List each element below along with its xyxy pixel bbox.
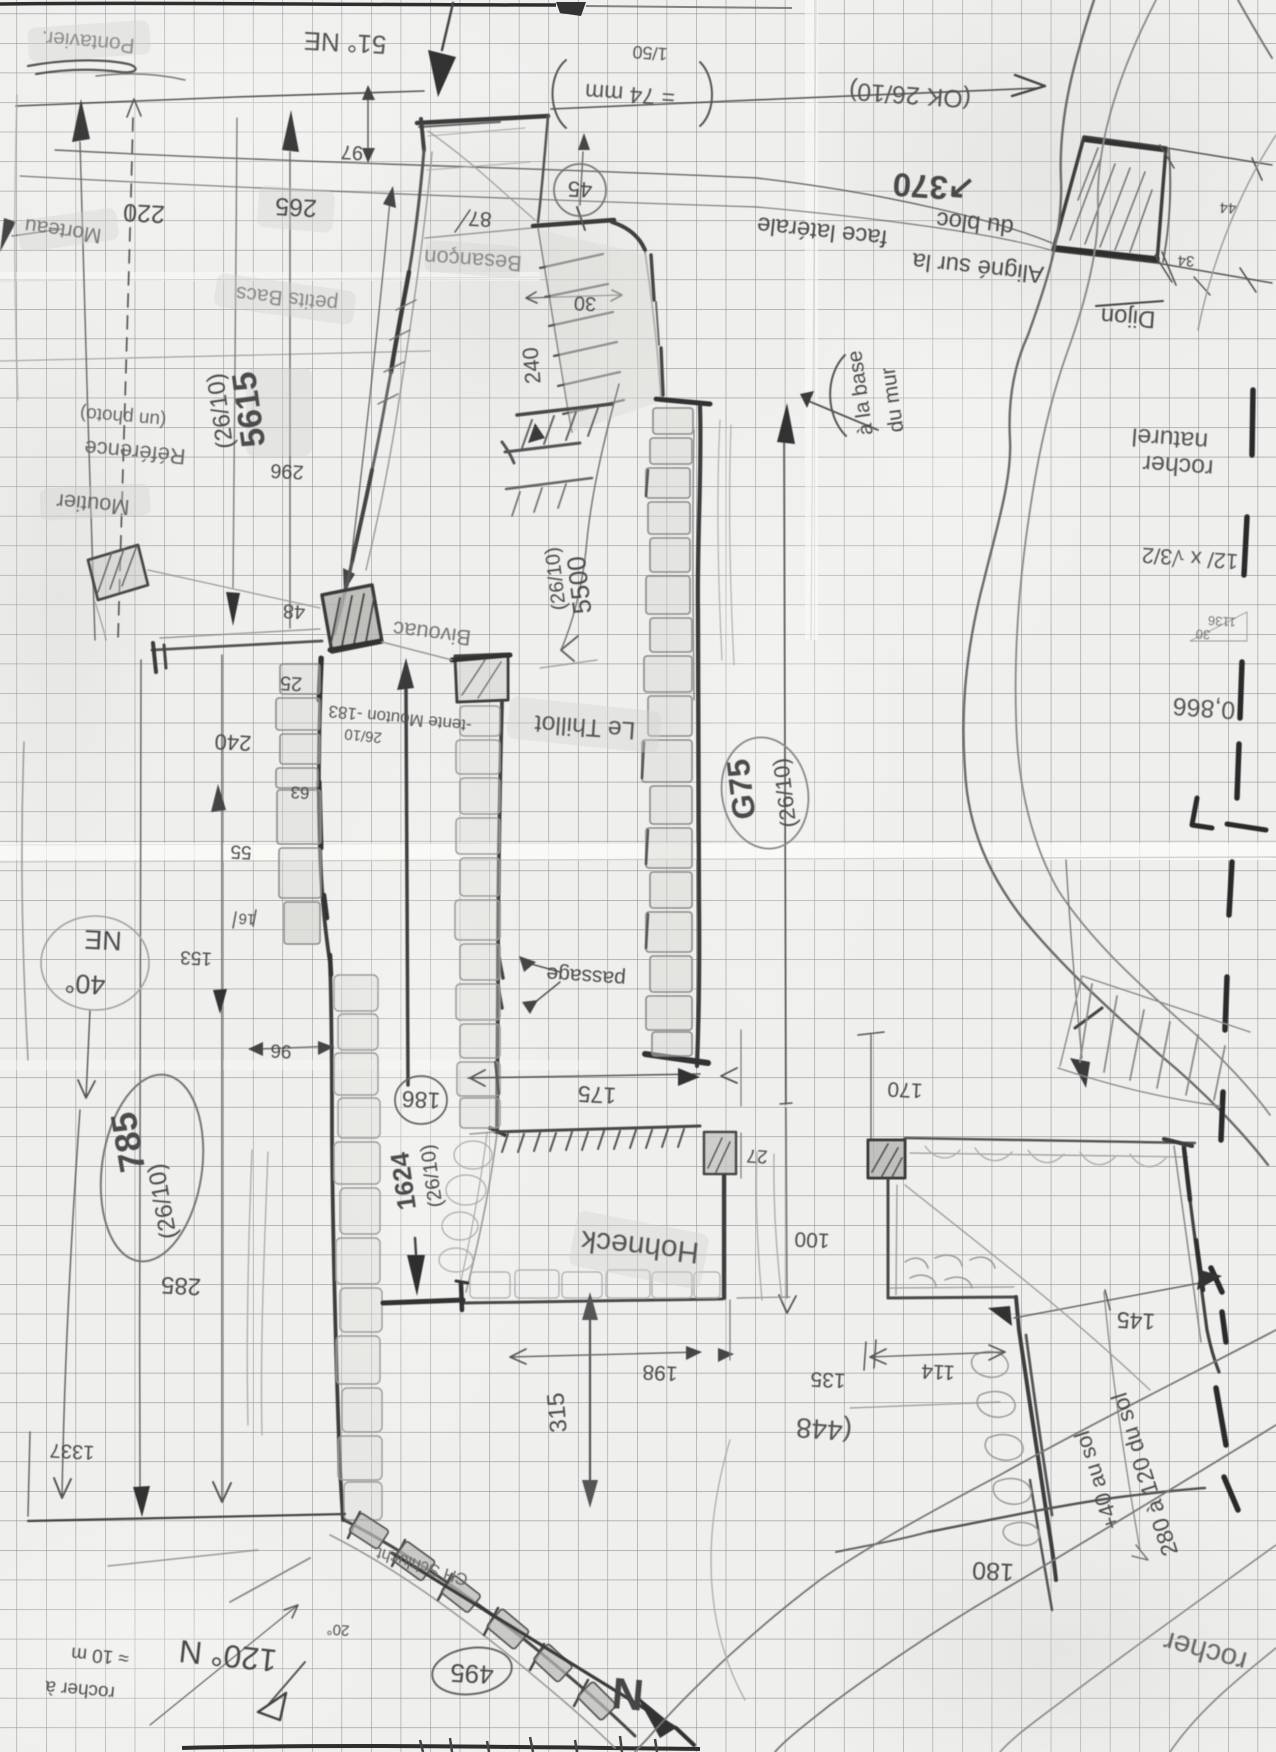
svg-text:↗370: ↗370 bbox=[891, 166, 976, 209]
svg-text:1136: 1136 bbox=[1207, 613, 1236, 630]
svg-text:170: 170 bbox=[887, 1077, 923, 1102]
svg-text:1337: 1337 bbox=[49, 1439, 95, 1463]
svg-text:87: 87 bbox=[468, 206, 493, 230]
svg-text:63: 63 bbox=[290, 783, 310, 803]
svg-text:G75: G75 bbox=[720, 757, 763, 821]
svg-text:175: 175 bbox=[577, 1081, 617, 1109]
svg-text:45: 45 bbox=[567, 176, 593, 202]
svg-text:51° NE: 51° NE bbox=[303, 26, 387, 60]
svg-text:135: 135 bbox=[810, 1367, 846, 1392]
svg-text:100: 100 bbox=[794, 1227, 830, 1252]
svg-text:495: 495 bbox=[449, 1658, 494, 1690]
svg-text:40°: 40° bbox=[64, 968, 106, 1000]
svg-text:97: 97 bbox=[340, 140, 363, 163]
svg-text:198: 198 bbox=[642, 1360, 678, 1385]
svg-text:48: 48 bbox=[282, 599, 305, 622]
svg-text:0,866: 0,866 bbox=[1172, 692, 1236, 724]
svg-text:145: 145 bbox=[1116, 1307, 1156, 1335]
svg-text:296: 296 bbox=[270, 459, 304, 483]
svg-text:16: 16 bbox=[238, 910, 256, 928]
svg-text:285: 285 bbox=[160, 1271, 201, 1300]
svg-text:240: 240 bbox=[517, 346, 545, 385]
svg-text:55: 55 bbox=[230, 840, 252, 862]
svg-text:186: 186 bbox=[401, 1086, 441, 1114]
svg-text:27: 27 bbox=[746, 1144, 768, 1166]
svg-text:220: 220 bbox=[122, 198, 165, 228]
svg-text:240: 240 bbox=[214, 729, 252, 756]
svg-text:1/50: 1/50 bbox=[632, 42, 668, 64]
svg-text:naturel: naturel bbox=[1131, 422, 1209, 455]
svg-text:44: 44 bbox=[1219, 199, 1237, 217]
svg-text:Dijon: Dijon bbox=[1100, 302, 1156, 333]
svg-text:30: 30 bbox=[573, 291, 596, 314]
svg-text:N: N bbox=[610, 1668, 646, 1720]
svg-text:315: 315 bbox=[542, 1392, 572, 1434]
svg-text:NE: NE bbox=[83, 924, 122, 956]
svg-text:114: 114 bbox=[920, 1359, 955, 1384]
svg-text:34: 34 bbox=[1177, 252, 1195, 270]
svg-text:30: 30 bbox=[1195, 627, 1210, 643]
svg-text:rocher: rocher bbox=[1142, 450, 1215, 483]
svg-text:180: 180 bbox=[971, 1556, 1014, 1586]
svg-text:153: 153 bbox=[180, 946, 213, 969]
svg-text:96: 96 bbox=[270, 1039, 292, 1061]
svg-text:20°: 20° bbox=[326, 1620, 350, 1638]
svg-text:(448: (448 bbox=[795, 1412, 853, 1447]
svg-text:25: 25 bbox=[279, 671, 302, 694]
svg-text:265: 265 bbox=[274, 192, 317, 222]
